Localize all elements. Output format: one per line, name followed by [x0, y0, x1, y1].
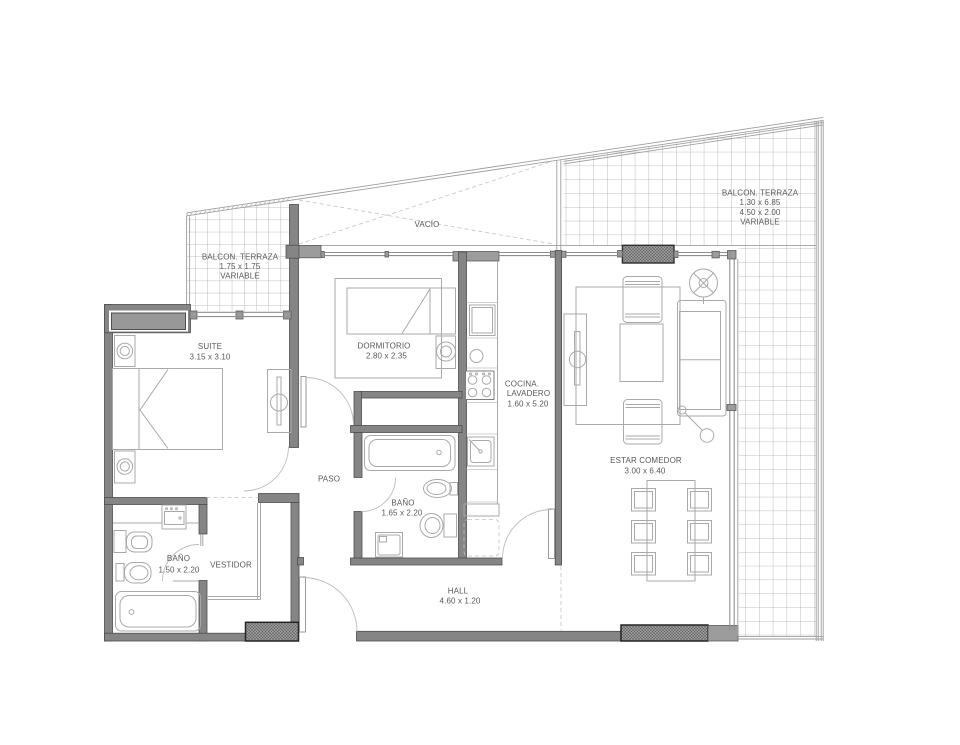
- svg-text:ESTAR COMEDOR: ESTAR COMEDOR: [610, 456, 682, 465]
- svg-text:VARIABLE: VARIABLE: [220, 272, 260, 281]
- svg-text:1.30 x 6.85: 1.30 x 6.85: [740, 198, 781, 207]
- svg-text:LAVADERO: LAVADERO: [507, 389, 550, 398]
- svg-text:COCINA.: COCINA.: [505, 380, 539, 389]
- svg-text:BALCON. TERRAZA: BALCON. TERRAZA: [202, 253, 279, 262]
- svg-text:BAÑO: BAÑO: [391, 499, 414, 508]
- svg-text:VESTIDOR: VESTIDOR: [210, 561, 252, 570]
- svg-text:1.75 x 1.75: 1.75 x 1.75: [220, 262, 261, 271]
- svg-text:3.00 x 6.40: 3.00 x 6.40: [625, 467, 666, 476]
- svg-text:VACÍO: VACÍO: [415, 220, 440, 229]
- svg-text:DORMITORIO: DORMITORIO: [357, 342, 410, 351]
- svg-text:BAÑO: BAÑO: [167, 554, 190, 563]
- svg-text:1.60 x 5.20: 1.60 x 5.20: [508, 400, 549, 409]
- svg-text:HALL: HALL: [448, 587, 469, 596]
- svg-text:4.60 x 1.20: 4.60 x 1.20: [440, 597, 481, 606]
- svg-text:VARIABLE: VARIABLE: [740, 218, 780, 227]
- svg-text:1.50 x 2.20: 1.50 x 2.20: [159, 566, 200, 575]
- svg-text:SUITE: SUITE: [198, 342, 222, 351]
- svg-text:PASO: PASO: [318, 475, 340, 484]
- svg-text:1.65 x 2.20: 1.65 x 2.20: [382, 509, 423, 518]
- svg-text:2.80 x 2.35: 2.80 x 2.35: [366, 352, 407, 361]
- svg-text:BALCON. TERRAZA: BALCON. TERRAZA: [722, 189, 799, 198]
- svg-text:3.15 x 3.10: 3.15 x 3.10: [190, 353, 231, 362]
- svg-text:4.50 x 2.00: 4.50 x 2.00: [740, 208, 781, 217]
